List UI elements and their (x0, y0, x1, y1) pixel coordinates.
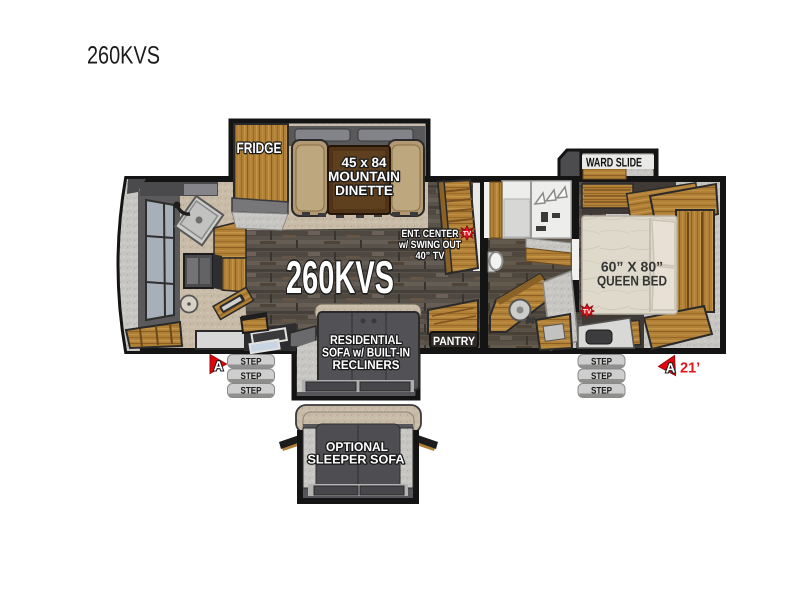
svg-text:STEP: STEP (591, 371, 613, 382)
svg-text:21’: 21’ (680, 361, 700, 377)
svg-text:STEP: STEP (241, 386, 263, 397)
svg-text:WARD SLIDE: WARD SLIDE (586, 156, 642, 170)
svg-text:STEP: STEP (591, 357, 613, 368)
svg-text:45 x 84: 45 x 84 (341, 155, 387, 170)
svg-text:RECLINERS: RECLINERS (333, 358, 400, 372)
svg-text:TV: TV (583, 309, 592, 316)
svg-text:STEP: STEP (591, 386, 613, 397)
svg-text:A: A (666, 361, 676, 376)
svg-text:STEP: STEP (241, 371, 263, 382)
svg-text:40” TV: 40” TV (416, 250, 445, 262)
svg-text:DINETTE: DINETTE (335, 183, 393, 198)
svg-text:SLEEPER SOFA: SLEEPER SOFA (308, 453, 405, 467)
svg-text:FRIDGE: FRIDGE (237, 140, 282, 157)
svg-text:260KVS: 260KVS (286, 251, 394, 303)
svg-text:260KVS: 260KVS (87, 42, 160, 70)
svg-text:TV: TV (463, 231, 472, 238)
svg-text:QUEEN BED: QUEEN BED (597, 273, 667, 289)
svg-text:A: A (214, 359, 224, 374)
svg-text:MOUNTAIN: MOUNTAIN (328, 169, 400, 184)
svg-text:STEP: STEP (241, 357, 263, 368)
svg-text:PANTRY: PANTRY (433, 334, 475, 348)
